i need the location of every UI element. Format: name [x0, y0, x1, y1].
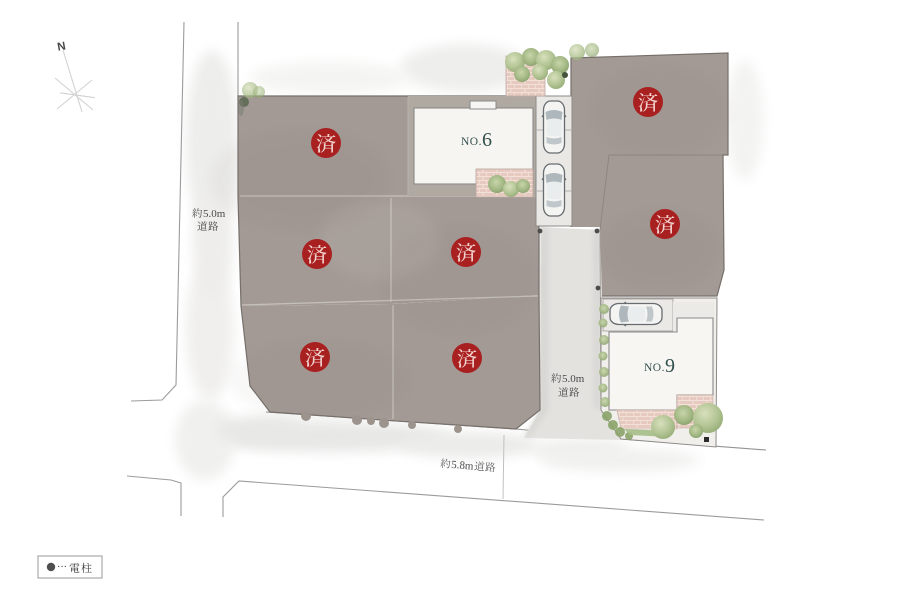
svg-text:N: N — [56, 40, 66, 53]
svg-text:···: ··· — [57, 562, 67, 573]
svg-text:5.8m: 5.8m — [451, 459, 475, 473]
svg-text:5.0m: 5.0m — [203, 208, 226, 220]
svg-text:5.0m: 5.0m — [562, 373, 585, 385]
